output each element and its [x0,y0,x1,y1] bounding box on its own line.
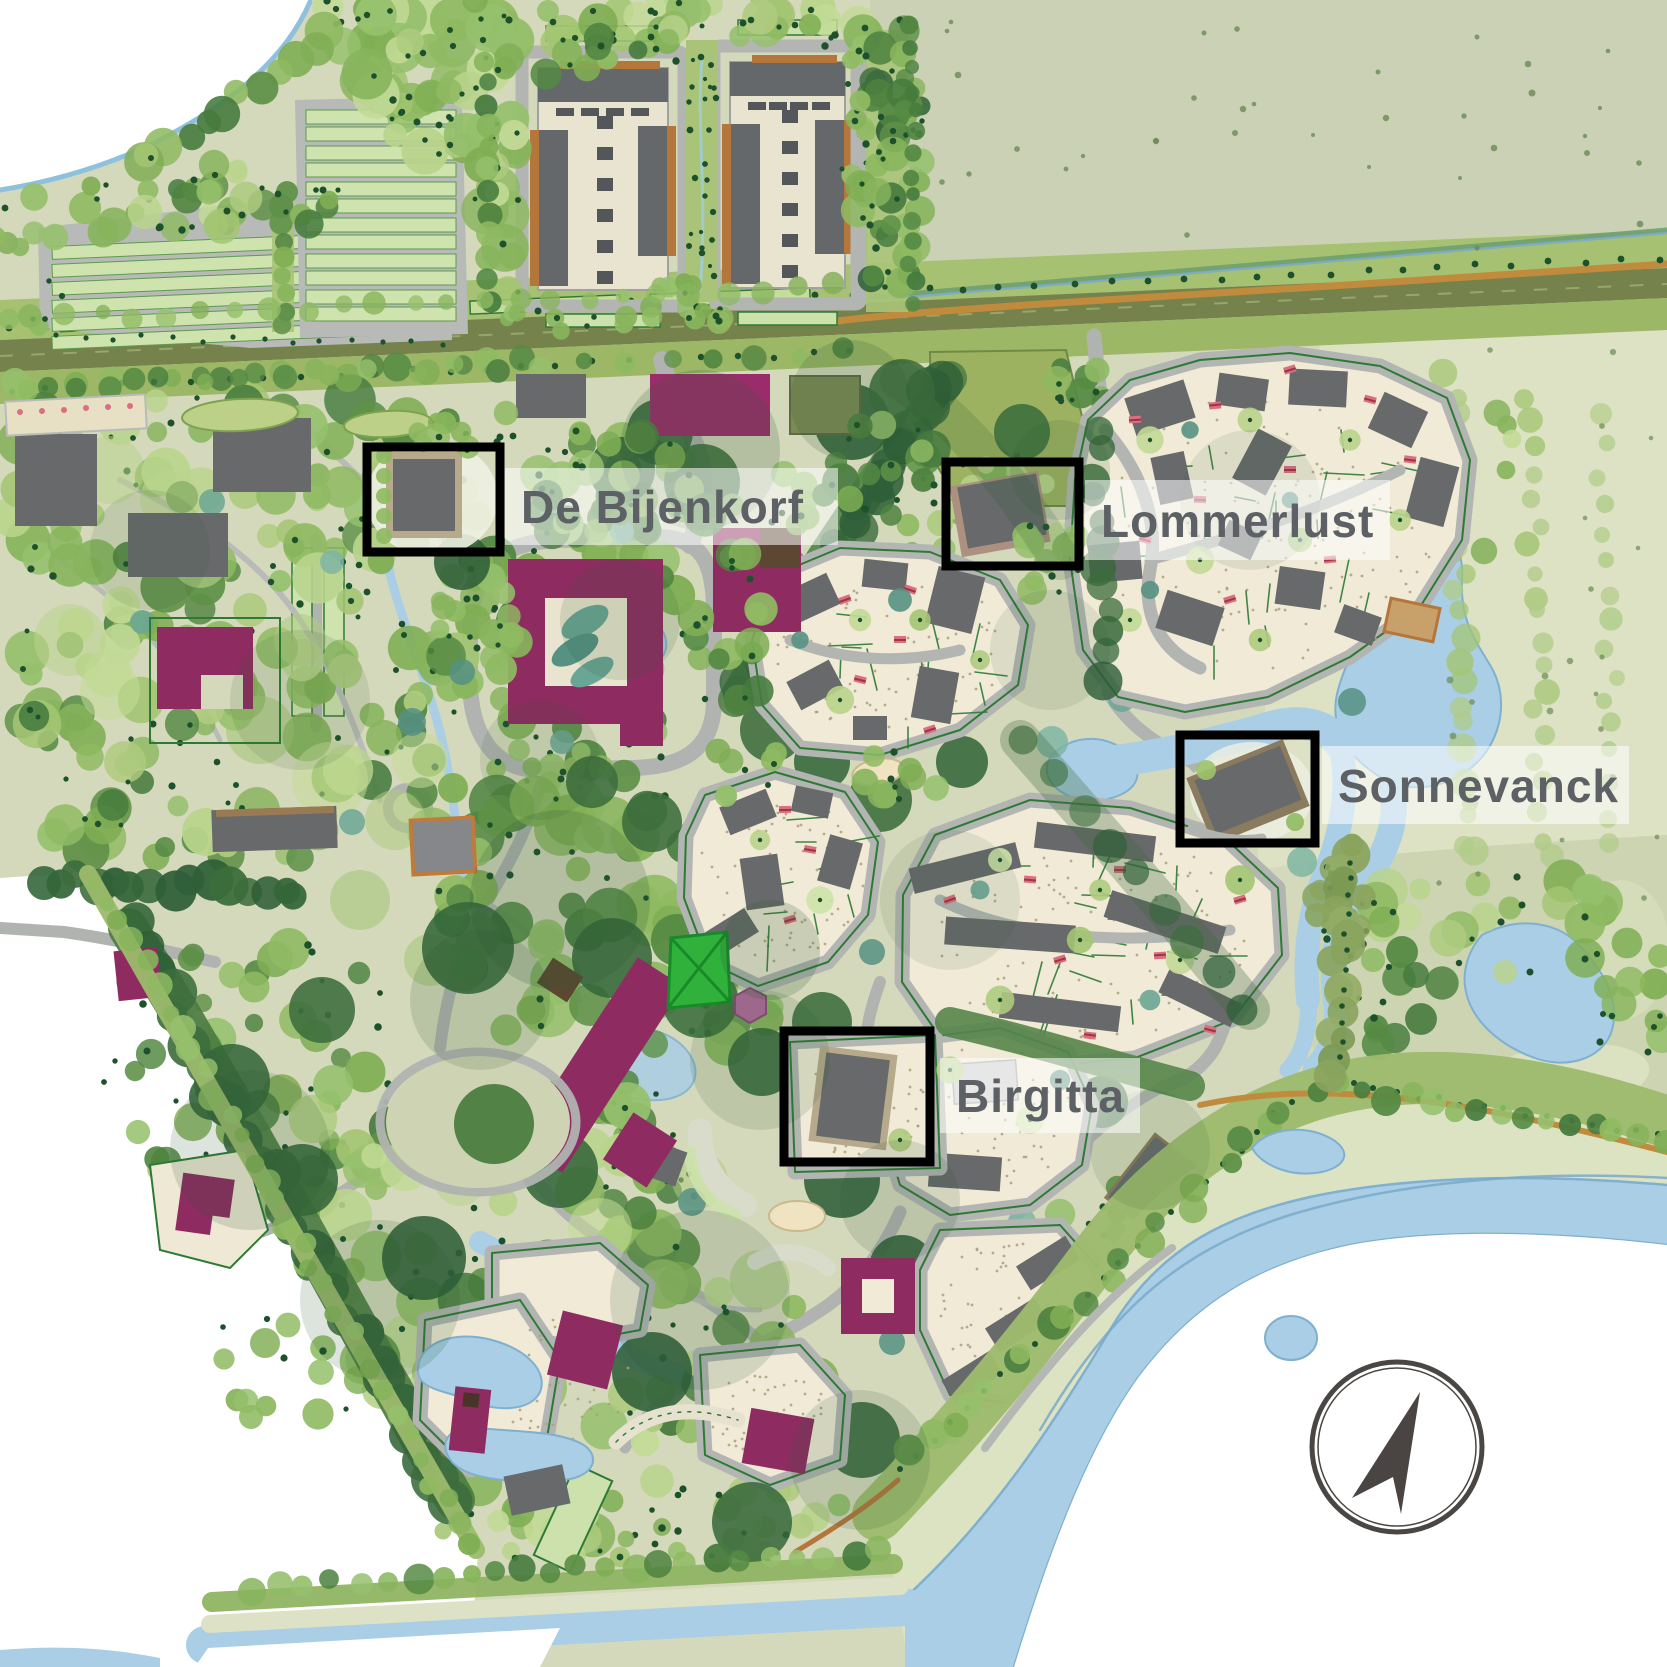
svg-text:Birgitta: Birgitta [956,1070,1125,1122]
svg-text:Sonnevanck: Sonnevanck [1338,760,1619,812]
svg-text:Lommerlust: Lommerlust [1101,495,1374,547]
svg-text:De Bijenkorf: De Bijenkorf [521,481,804,533]
